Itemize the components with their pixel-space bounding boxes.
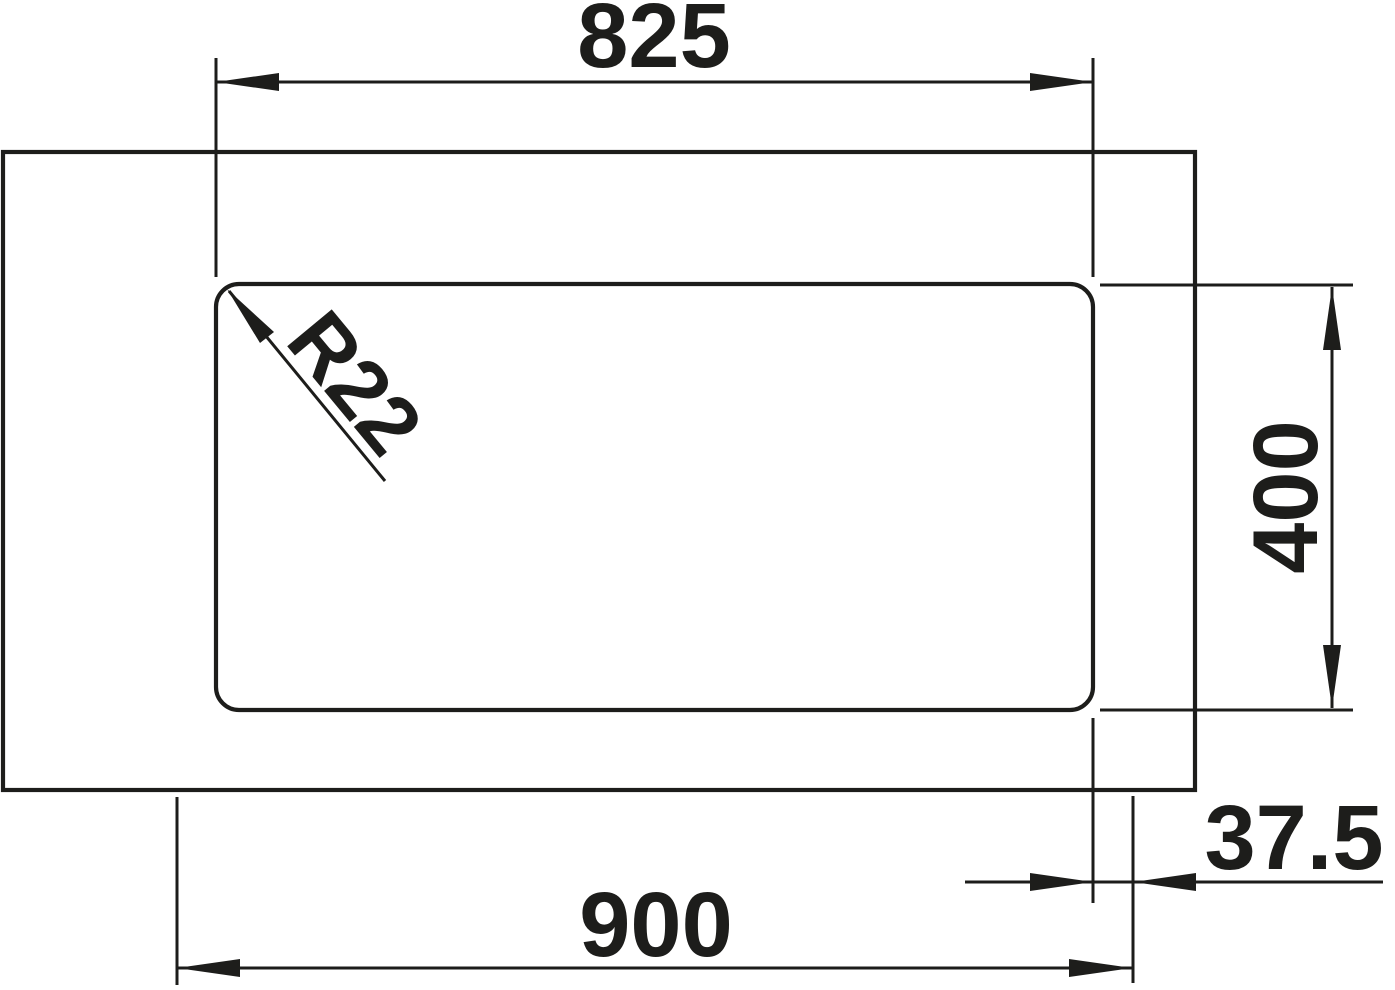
dim-cutout-depth-label: 400 xyxy=(1235,420,1337,574)
dim-corner-radius: R22 xyxy=(227,289,440,481)
dimension-drawing: 825 400 37.5 900 xyxy=(0,0,1395,990)
dim-edge-offset: 37.5 xyxy=(965,718,1384,983)
arrow-down-icon xyxy=(1323,645,1341,708)
arrow-up-left-icon xyxy=(227,289,274,343)
dim-cutout-depth: 400 xyxy=(1100,285,1353,710)
dim-overall-width: 900 xyxy=(177,797,1132,985)
worktop-outline xyxy=(3,152,1195,790)
arrow-up-icon xyxy=(1323,287,1341,350)
arrow-left-icon xyxy=(177,959,240,977)
arrow-right-icon xyxy=(1069,959,1132,977)
arrow-right-icon xyxy=(1030,873,1093,891)
dim-edge-offset-label: 37.5 xyxy=(1204,787,1383,889)
arrow-left-icon xyxy=(1133,873,1196,891)
corner-radius-label: R22 xyxy=(270,293,441,472)
dim-overall-width-label: 900 xyxy=(579,874,733,976)
drawing-canvas: 825 400 37.5 900 xyxy=(0,0,1395,990)
arrow-right-icon xyxy=(1030,73,1093,91)
dim-cutout-width-label: 825 xyxy=(577,0,731,87)
dim-cutout-width: 825 xyxy=(216,0,1093,277)
arrow-left-icon xyxy=(216,73,279,91)
